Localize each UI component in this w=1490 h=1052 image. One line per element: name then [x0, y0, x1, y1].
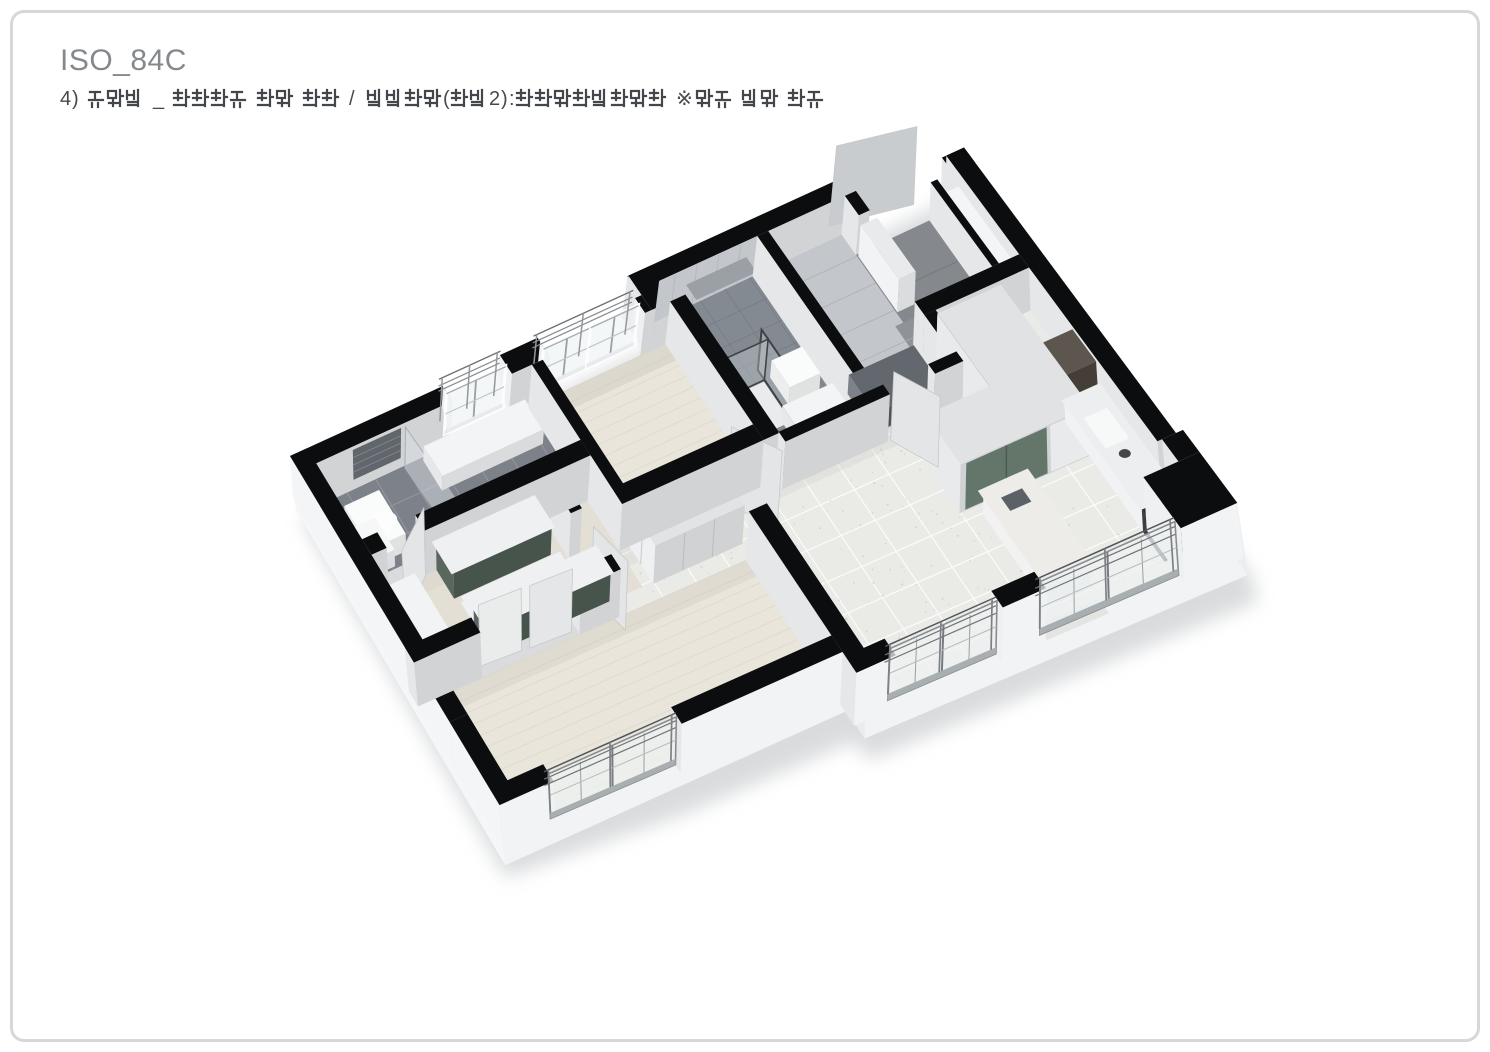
- svg-text:): ): [501, 88, 508, 110]
- svg-text:※: ※: [676, 88, 693, 110]
- svg-text:/: /: [349, 88, 355, 110]
- svg-text:4: 4: [60, 88, 71, 110]
- svg-text:2: 2: [489, 88, 500, 110]
- svg-text:_: _: [152, 88, 165, 110]
- svg-text:(: (: [443, 88, 450, 110]
- svg-text::: :: [509, 88, 515, 110]
- svg-text:): ): [72, 88, 79, 110]
